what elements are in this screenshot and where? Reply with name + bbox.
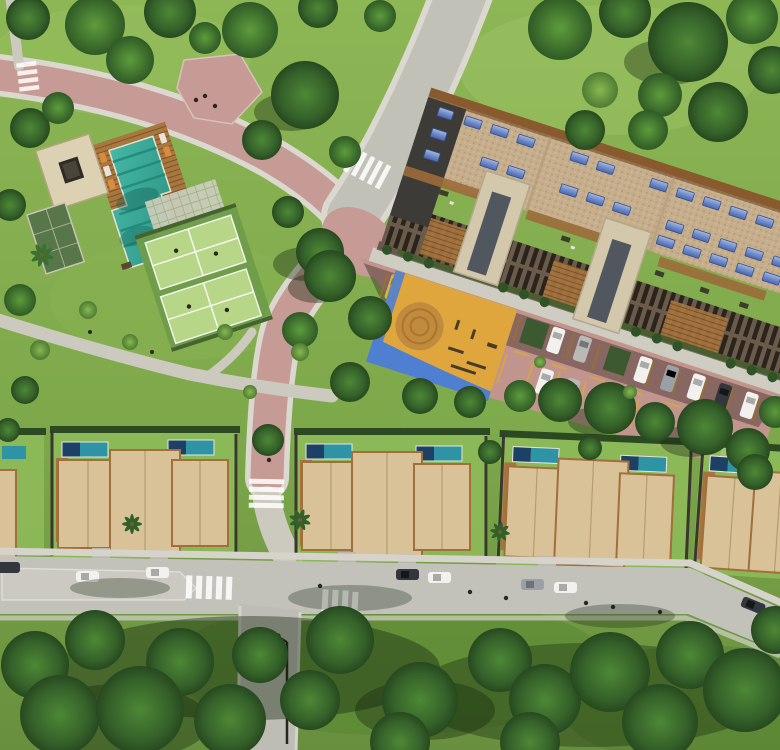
townhouse-cluster-b: [294, 428, 490, 565]
plunge-pool: [512, 447, 559, 464]
parked-car: [521, 579, 544, 590]
parked-car: [396, 569, 419, 580]
parked-car: [0, 562, 20, 573]
aerial-site-render: Aerial top-down 3D rendering of a reside…: [0, 0, 780, 750]
plunge-pool: [306, 444, 352, 459]
townhouse-roof: [0, 470, 16, 558]
parked-car: [554, 582, 577, 593]
townhouse-cluster-partial: [0, 428, 46, 558]
plunge-pool: [2, 446, 26, 459]
parked-car: [428, 572, 451, 583]
townhouse-cluster-a: [50, 426, 240, 561]
parked-car: [146, 567, 169, 578]
site-plan-canvas: [0, 0, 780, 750]
palm-tree: [122, 514, 142, 534]
plunge-pool: [62, 442, 108, 457]
